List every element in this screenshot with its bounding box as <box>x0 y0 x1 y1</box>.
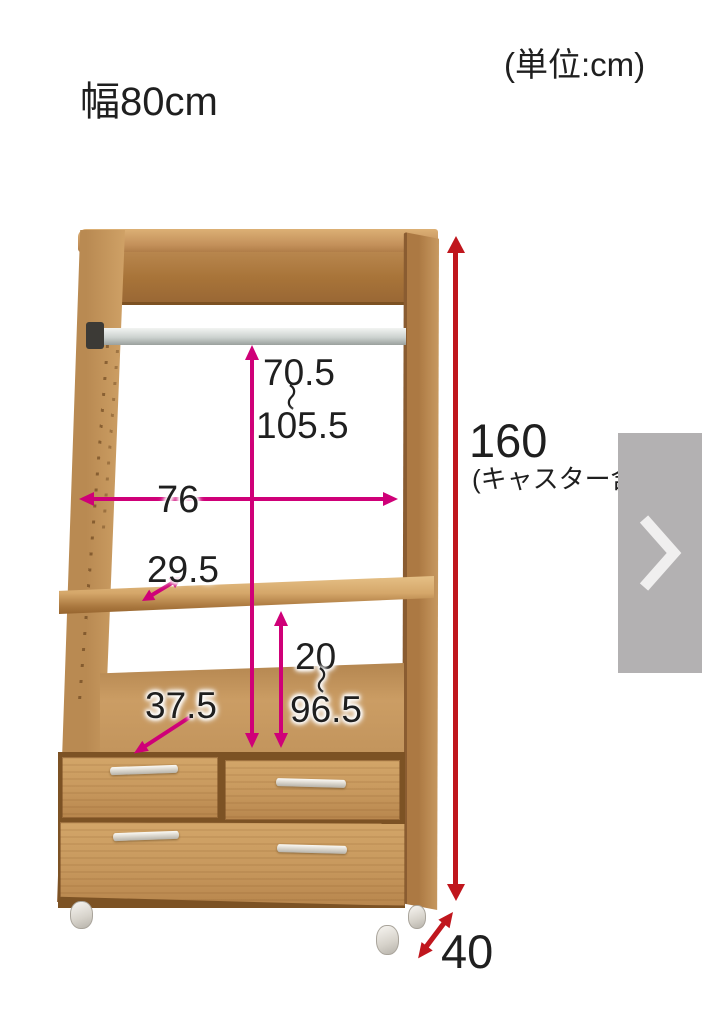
hanger-max-label: 105.5 <box>256 407 349 444</box>
lower-max-label: 96.5 <box>290 691 362 728</box>
width-label: 幅80cm <box>80 82 218 122</box>
carousel-next-button[interactable] <box>618 433 702 673</box>
caster-wheel <box>376 925 399 955</box>
lower-depth-label: 37.5 <box>145 687 217 724</box>
chevron-right-icon <box>636 511 684 595</box>
total-height-label: 160 <box>469 417 547 464</box>
caster-wheel <box>70 901 93 929</box>
unit-note: (単位:cm) <box>504 48 645 81</box>
caster-wheel <box>408 905 426 929</box>
inner-width-label: 76 <box>157 481 199 519</box>
middle-shelf <box>59 576 434 614</box>
product-dimension-diagram: 幅80cm (単位:cm) <box>0 0 702 1012</box>
drawer-small-right <box>225 760 400 820</box>
top-board <box>78 229 438 252</box>
hanger-bar <box>95 328 406 345</box>
hanger-bar-bracket <box>86 322 104 349</box>
top-rail <box>121 244 408 305</box>
drawer-large <box>60 822 405 906</box>
depth-label: 40 <box>441 928 493 975</box>
shelf-depth-label: 29.5 <box>147 551 219 588</box>
right-side-panel <box>402 232 439 910</box>
